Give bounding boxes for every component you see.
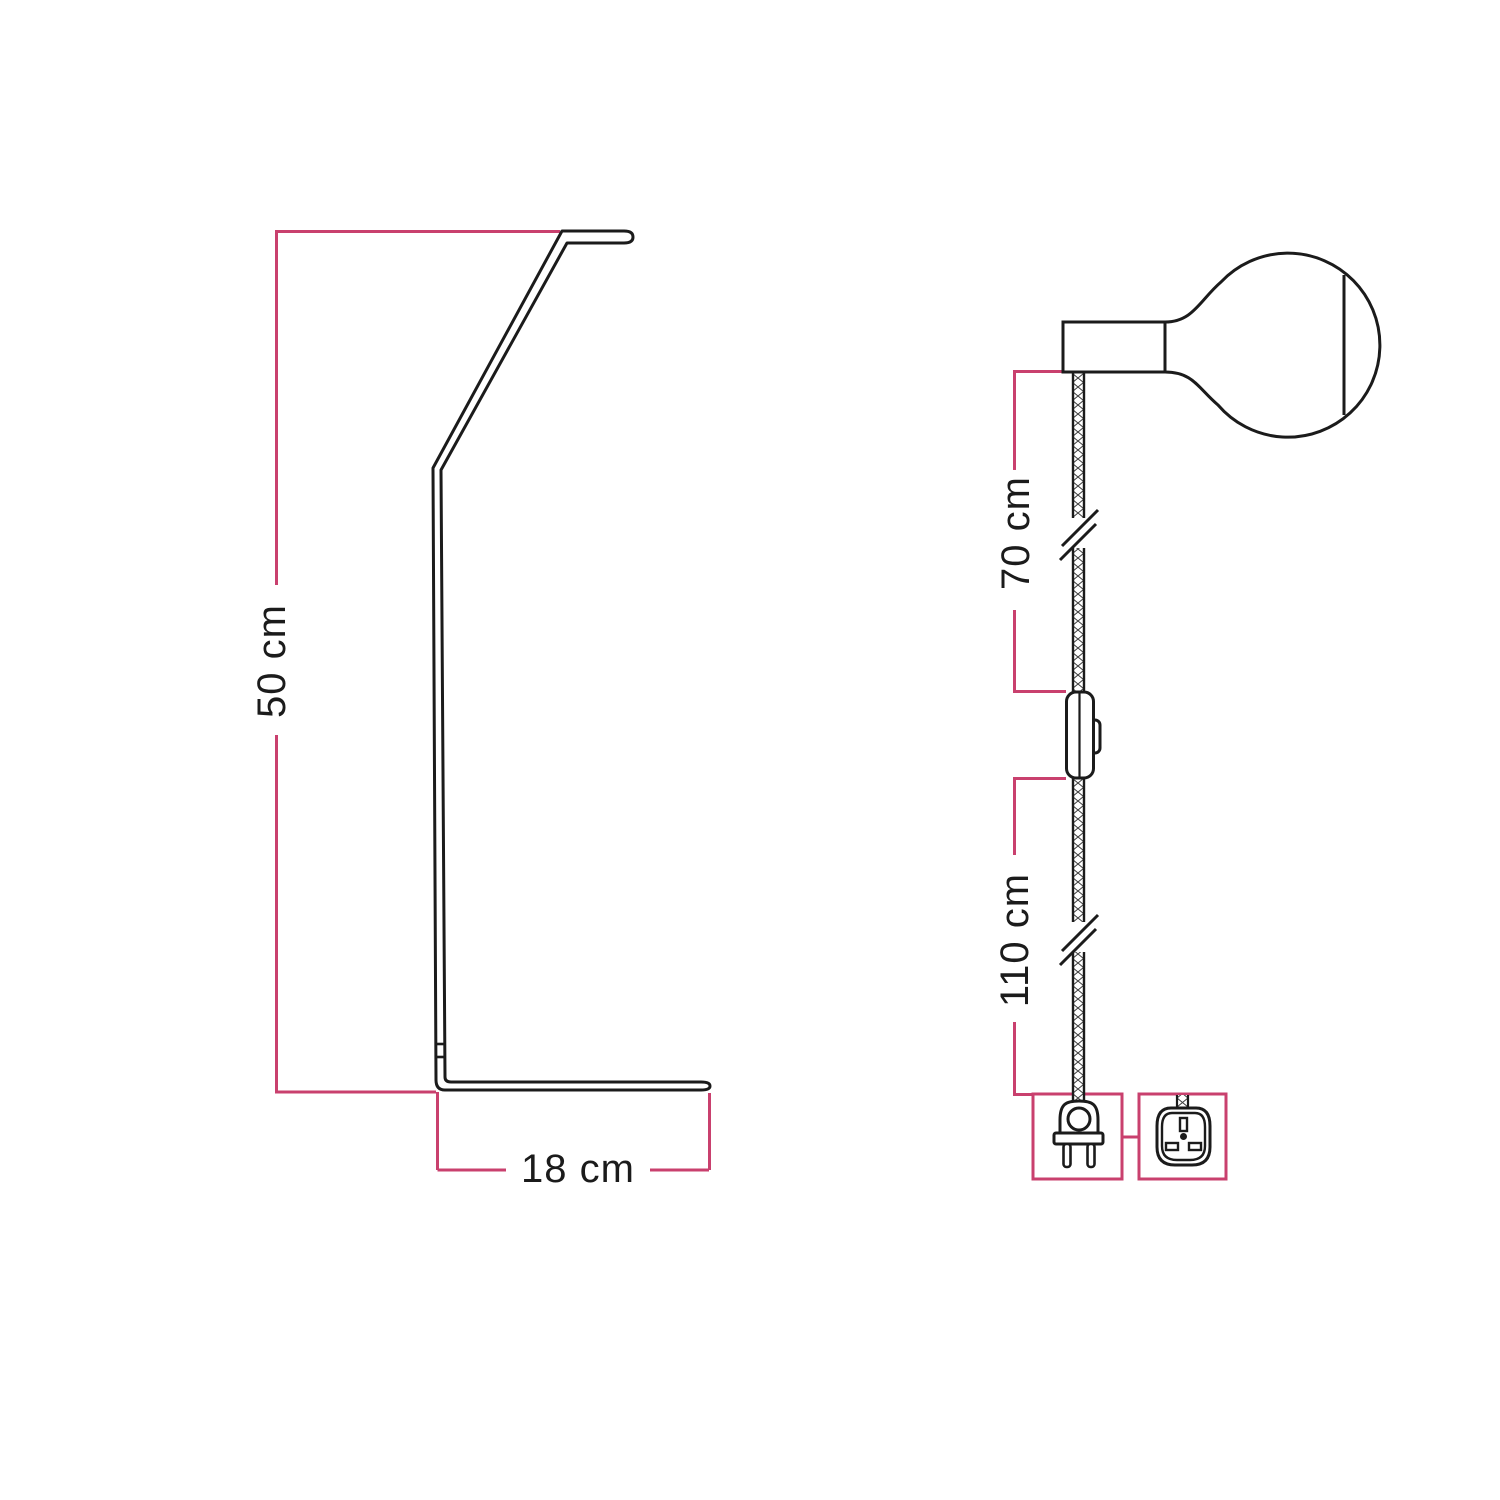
base-depth-dimension-label: 18 cm [515, 1149, 641, 1189]
upper-cable-dimension-label: 70 cm [996, 470, 1036, 596]
euro-plug-pin-left [1064, 1144, 1071, 1167]
uk-plug-screw-dot [1180, 1133, 1187, 1140]
inline-switch-icon [1067, 692, 1101, 778]
lamp-holder-icon [1063, 322, 1165, 372]
euro-plug-icon [1054, 1101, 1103, 1167]
euro-plug-pin-right [1088, 1144, 1095, 1167]
bulb-glass [1165, 253, 1380, 437]
euro-plug-cable-hole [1068, 1108, 1090, 1130]
product-dimension-diagram: 50 cm 18 cm 70 cm 110 cm [0, 0, 1500, 1500]
uk-plug-icon [1157, 1095, 1210, 1165]
uk-plug-earth-pin [1180, 1118, 1187, 1131]
uk-plug-neutral-pin [1189, 1143, 1201, 1150]
cable-segment-3 [1073, 778, 1084, 922]
left-figure [275, 231, 710, 1170]
right-figure [1013, 253, 1380, 1179]
euro-plug-base [1054, 1133, 1103, 1144]
cable-segment-4 [1073, 952, 1084, 1103]
cable-segment-2 [1073, 548, 1084, 692]
globe-bulb-icon [1063, 253, 1380, 437]
stand-outline [433, 231, 710, 1090]
uk-plug-live-pin [1166, 1143, 1178, 1150]
lower-cable-dimension-label: 110 cm [995, 867, 1035, 1013]
height-dimension-line [275, 232, 560, 1093]
height-dimension-label: 50 cm [252, 598, 292, 724]
diagram-linework [0, 0, 1500, 1500]
cable-segment-1 [1073, 372, 1084, 518]
